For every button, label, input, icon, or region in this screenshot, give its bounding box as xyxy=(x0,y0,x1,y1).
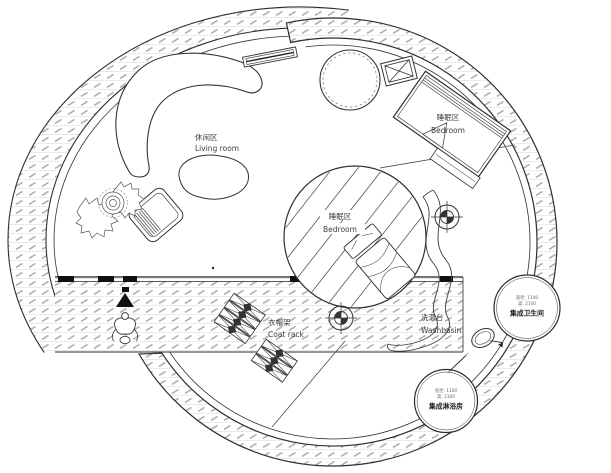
coat-rack-label-zh: 衣帽架 xyxy=(268,317,291,327)
bedroom-top-label-en: Bedroom xyxy=(431,126,465,135)
bedroom-center-label-zh: 睡眠区 xyxy=(329,212,352,221)
round-table xyxy=(320,50,380,110)
living-room-label-en: Living room xyxy=(195,144,239,153)
bathroom-dim1: 直径: 1100 xyxy=(516,294,539,301)
shower-dim1: 直径: 1100 xyxy=(435,387,458,394)
shower-dim2: 高: 2100 xyxy=(437,393,455,400)
washbasin-label-zh: 洗漱台 xyxy=(421,312,444,322)
washbasin-label-en: Washbasin xyxy=(421,326,462,335)
bathroom-pod xyxy=(494,275,560,341)
floor-plan-canvas: 休闲区 Living room 睡眠区 Bedroom 睡眠区 Bedroom … xyxy=(0,0,611,473)
shower-label: 集成淋浴房 xyxy=(428,402,463,411)
coat-rack-label-en: Coat rack xyxy=(268,330,305,339)
floor-dot xyxy=(212,267,214,269)
bathroom-label: 集成卫生间 xyxy=(509,309,544,318)
bathroom-dim2: 高: 2100 xyxy=(518,300,536,307)
bedroom-center-label-en: Bedroom xyxy=(323,225,357,234)
shower-pod xyxy=(415,370,478,433)
coffee-table xyxy=(179,155,249,199)
living-room-label-zh: 休闲区 xyxy=(195,132,218,142)
bedroom-top-label-zh: 睡眠区 xyxy=(437,113,460,122)
floor-plan-page: 休闲区 Living room 睡眠区 Bedroom 睡眠区 Bedroom … xyxy=(0,0,611,473)
